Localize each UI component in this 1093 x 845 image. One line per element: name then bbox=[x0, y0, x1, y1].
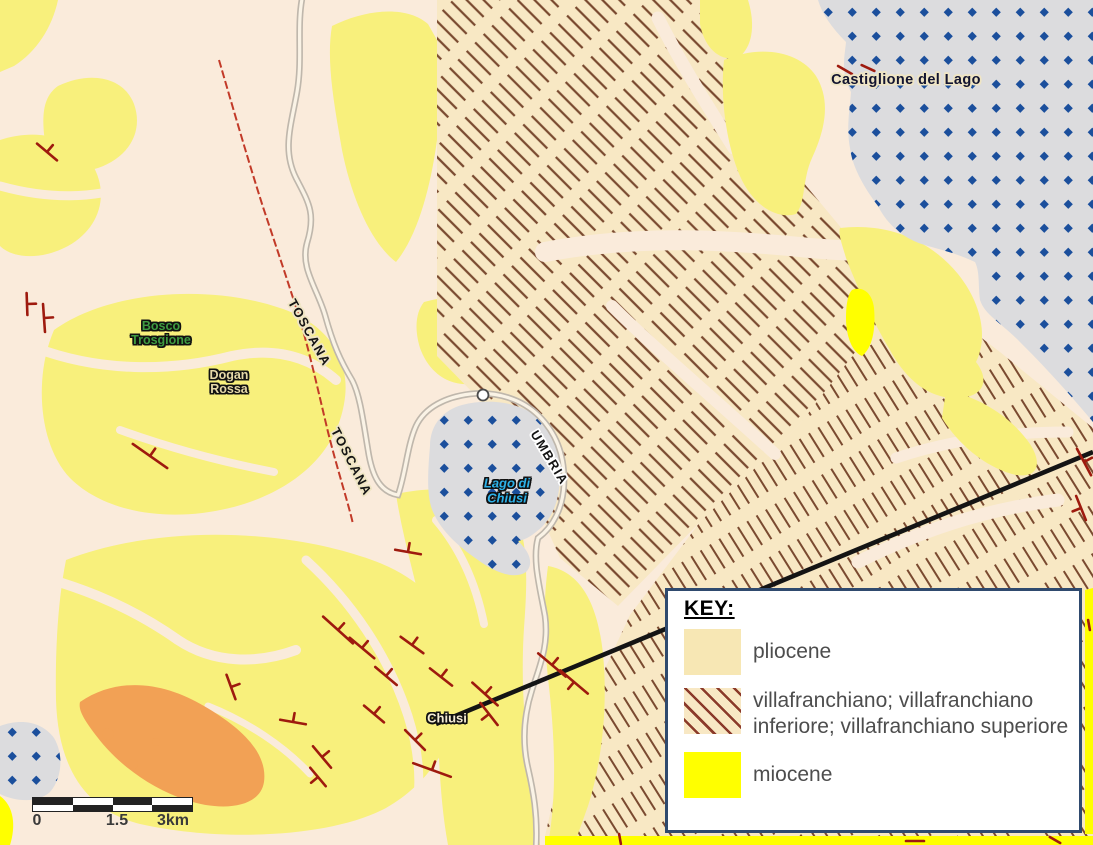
strike-dip-symbol bbox=[1088, 620, 1090, 630]
key-entry-miocene: miocene bbox=[684, 752, 1079, 798]
village-point-icon bbox=[478, 390, 489, 401]
pliocene-swatch bbox=[684, 629, 741, 675]
key-entry-pliocene: pliocene bbox=[684, 629, 1079, 675]
scale-bar bbox=[32, 797, 193, 812]
villafranchiano-swatch bbox=[684, 688, 741, 734]
miocene-swatch bbox=[684, 752, 741, 798]
key-label-villafranchiano: villafranchiano; villafranchiano inferio… bbox=[753, 688, 1073, 739]
geological-map-view[interactable]: Castiglione del Lago Bosco Trosgione Dog… bbox=[0, 0, 1093, 845]
key-label-pliocene: pliocene bbox=[753, 639, 1073, 665]
key-title: KEY: bbox=[684, 597, 1079, 621]
map-key: KEY: pliocene villafranchiano; villafran… bbox=[665, 588, 1082, 833]
key-entry-villafranchiano: villafranchiano; villafranchiano inferio… bbox=[684, 688, 1079, 739]
scale-label-end: 3km bbox=[157, 812, 189, 830]
scale-label-start: 0 bbox=[33, 812, 42, 830]
key-label-miocene: miocene bbox=[753, 762, 1073, 788]
scale-label-mid: 1.5 bbox=[106, 812, 128, 830]
strike-dip-symbol bbox=[619, 834, 621, 844]
